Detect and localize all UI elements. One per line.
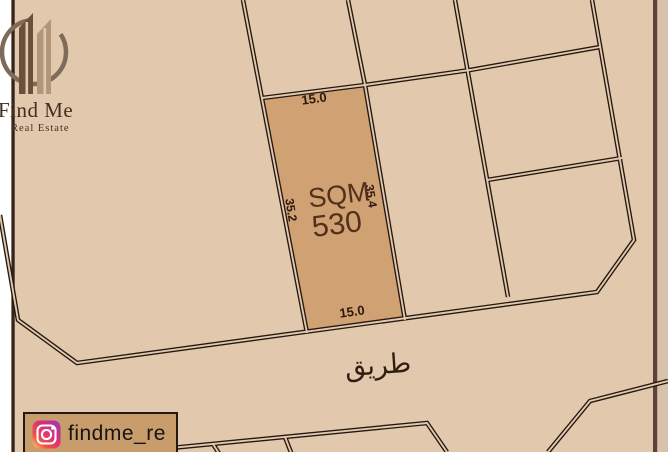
building-logo-icon xyxy=(0,4,80,102)
logo-subtitle: Real Estate xyxy=(11,123,70,134)
agency-logo: Find Me Real Estate xyxy=(0,0,110,145)
logo-title: Find Me xyxy=(0,98,73,123)
instagram-handle: findme_re xyxy=(68,422,166,446)
road-label: طريق xyxy=(335,347,421,384)
real-estate-plot-ad: 15.0 15.0 35.2 35.4 SQM 530 طريق Find Me… xyxy=(0,0,668,452)
instagram-icon xyxy=(32,420,61,449)
instagram-badge[interactable]: findme_re xyxy=(23,412,178,452)
